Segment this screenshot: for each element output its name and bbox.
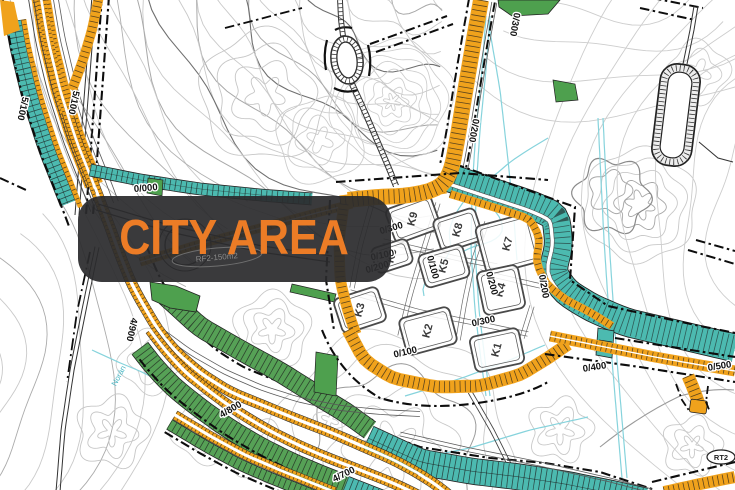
svg-text:0/000: 0/000 <box>133 182 158 195</box>
svg-text:RT2: RT2 <box>714 453 728 462</box>
svg-text:CITY AREA: CITY AREA <box>119 209 349 264</box>
